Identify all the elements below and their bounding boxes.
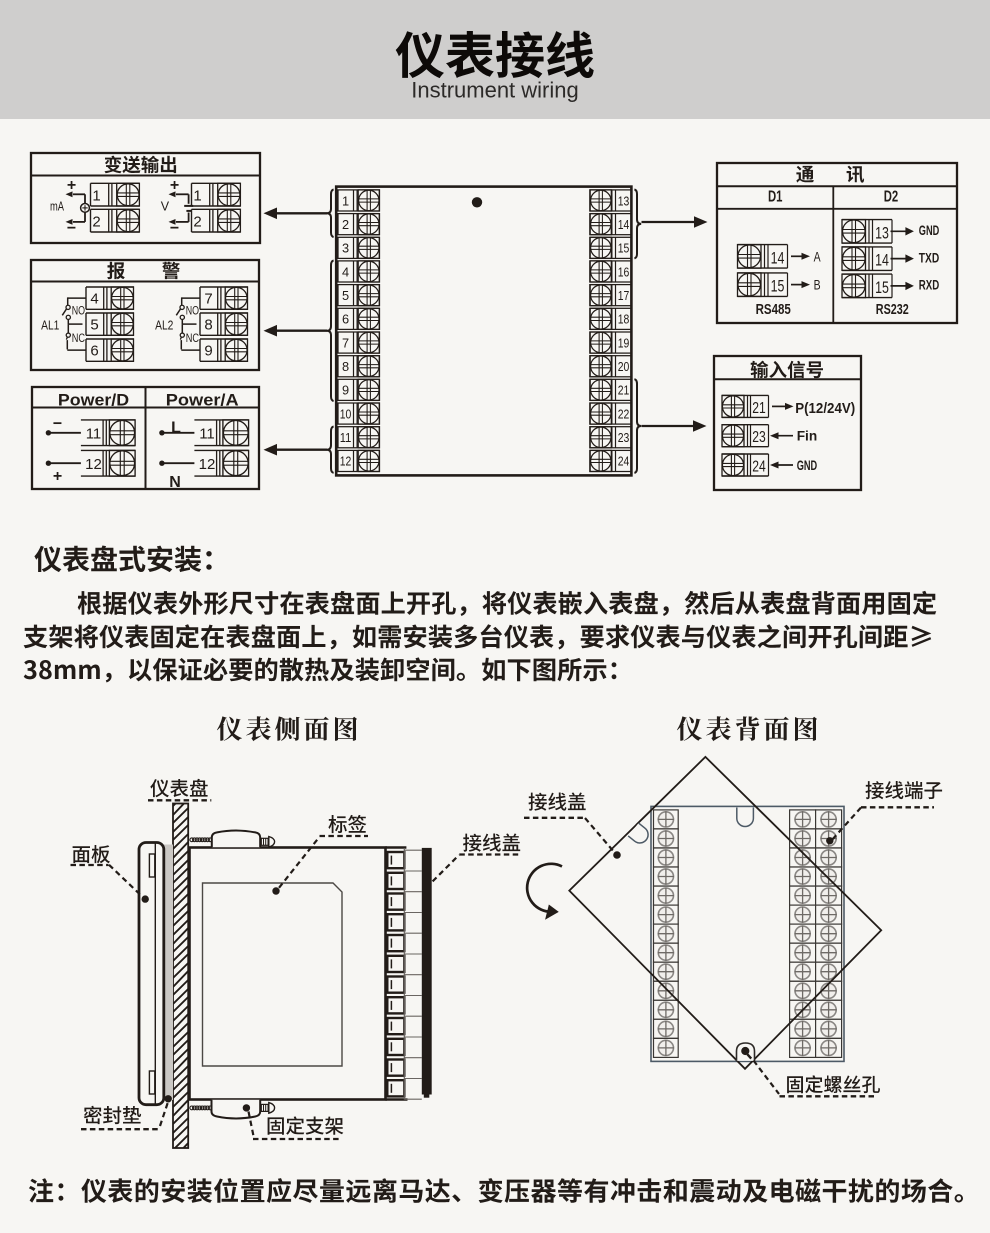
svg-text:2: 2 bbox=[193, 214, 201, 231]
svg-text:11: 11 bbox=[340, 430, 352, 445]
svg-text:15: 15 bbox=[618, 241, 630, 256]
svg-text:N: N bbox=[169, 474, 181, 491]
svg-text:16: 16 bbox=[618, 264, 630, 279]
svg-text:8: 8 bbox=[342, 359, 349, 374]
svg-text:17: 17 bbox=[618, 288, 630, 303]
svg-text:2: 2 bbox=[342, 217, 349, 232]
svg-text:24: 24 bbox=[752, 459, 766, 476]
svg-text:4: 4 bbox=[342, 264, 349, 279]
svg-text:L: L bbox=[171, 420, 181, 437]
svg-text:14: 14 bbox=[618, 217, 630, 232]
svg-text:4: 4 bbox=[90, 291, 98, 308]
svg-text:11: 11 bbox=[86, 425, 102, 442]
svg-text:RS232: RS232 bbox=[876, 302, 909, 318]
svg-text:21: 21 bbox=[618, 383, 630, 398]
svg-text:5: 5 bbox=[342, 288, 349, 303]
svg-text:Fin: Fin bbox=[797, 428, 818, 444]
svg-text:NO: NO bbox=[72, 306, 85, 318]
svg-text:TXD: TXD bbox=[919, 250, 940, 265]
svg-text:AL2: AL2 bbox=[155, 319, 173, 333]
svg-text:7: 7 bbox=[204, 291, 212, 308]
svg-text:RXD: RXD bbox=[919, 278, 940, 293]
svg-text:5: 5 bbox=[90, 317, 98, 334]
svg-text:13: 13 bbox=[618, 193, 630, 208]
svg-text:20: 20 bbox=[618, 359, 630, 374]
svg-text:mA: mA bbox=[50, 200, 64, 214]
svg-text:18: 18 bbox=[618, 312, 630, 327]
svg-text:23: 23 bbox=[752, 429, 766, 446]
svg-text:9: 9 bbox=[342, 383, 349, 398]
svg-text:21: 21 bbox=[752, 400, 766, 417]
svg-text:+: + bbox=[67, 177, 76, 194]
svg-text:P(12/24V): P(12/24V) bbox=[795, 401, 855, 417]
svg-text:12: 12 bbox=[199, 456, 216, 473]
svg-text:Instrument wiring: Instrument wiring bbox=[411, 78, 579, 103]
svg-text:+: + bbox=[170, 177, 179, 194]
svg-text:D2: D2 bbox=[884, 189, 899, 206]
svg-text:3: 3 bbox=[342, 241, 349, 256]
svg-text:2: 2 bbox=[92, 214, 100, 231]
svg-text:6: 6 bbox=[342, 312, 349, 327]
svg-text:24: 24 bbox=[618, 454, 630, 469]
svg-text:7: 7 bbox=[342, 335, 349, 350]
svg-text:9: 9 bbox=[204, 343, 212, 360]
svg-text:1: 1 bbox=[92, 187, 100, 204]
svg-text:Power/A: Power/A bbox=[166, 391, 239, 409]
svg-text:1: 1 bbox=[342, 193, 349, 208]
svg-text:14: 14 bbox=[875, 251, 889, 270]
svg-text:NO: NO bbox=[186, 306, 199, 318]
svg-text:8: 8 bbox=[204, 317, 212, 334]
svg-text:A: A bbox=[814, 248, 821, 264]
svg-text:23: 23 bbox=[618, 430, 630, 445]
svg-text:12: 12 bbox=[85, 456, 102, 473]
svg-text:19: 19 bbox=[618, 335, 630, 350]
svg-text:15: 15 bbox=[771, 277, 785, 296]
svg-text:Power/D: Power/D bbox=[58, 391, 129, 409]
svg-text:D1: D1 bbox=[768, 189, 783, 206]
svg-text:GND: GND bbox=[797, 457, 818, 473]
svg-text:12: 12 bbox=[340, 454, 352, 469]
svg-text:13: 13 bbox=[875, 223, 889, 242]
svg-text:15: 15 bbox=[875, 278, 889, 297]
svg-text:V: V bbox=[161, 200, 170, 214]
svg-text:11: 11 bbox=[199, 425, 215, 442]
svg-text:1: 1 bbox=[193, 187, 201, 204]
svg-text:RS485: RS485 bbox=[756, 302, 791, 318]
svg-text:NC: NC bbox=[72, 333, 85, 345]
svg-text:B: B bbox=[814, 277, 821, 293]
svg-text:GND: GND bbox=[919, 223, 940, 238]
svg-text:AL1: AL1 bbox=[41, 319, 59, 333]
svg-text:14: 14 bbox=[771, 248, 785, 267]
svg-text:6: 6 bbox=[90, 343, 98, 360]
svg-text:NC: NC bbox=[186, 333, 199, 345]
svg-text:22: 22 bbox=[618, 406, 630, 421]
svg-text:−: − bbox=[53, 416, 62, 433]
svg-text:10: 10 bbox=[340, 406, 352, 421]
svg-text:+: + bbox=[53, 468, 62, 485]
